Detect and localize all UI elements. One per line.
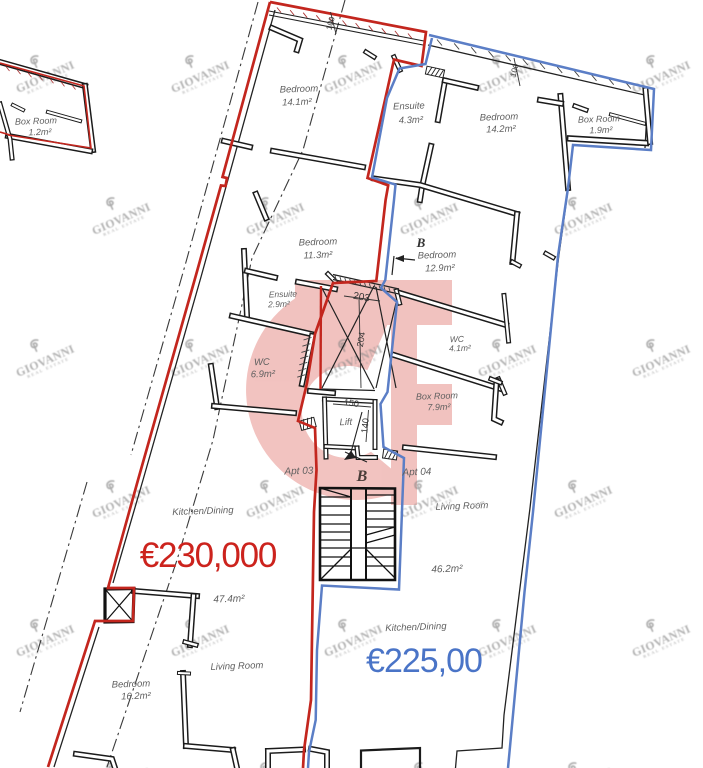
svg-text:Bedroom: Bedroom	[479, 111, 518, 123]
svg-text:Bedroom: Bedroom	[111, 678, 150, 690]
svg-text:14.1m²: 14.1m²	[282, 96, 313, 108]
svg-text:4.1m²: 4.1m²	[449, 343, 472, 354]
svg-text:140: 140	[359, 418, 371, 434]
svg-text:Ensuite: Ensuite	[393, 100, 425, 112]
svg-text:7.9m²: 7.9m²	[427, 402, 451, 413]
svg-text:2.9m²: 2.9m²	[267, 299, 291, 310]
svg-text:47.4m²: 47.4m²	[213, 593, 245, 605]
svg-text:Bedroom: Bedroom	[279, 83, 318, 95]
svg-text:Box Room: Box Room	[416, 390, 459, 401]
svg-text:Box Room: Box Room	[15, 115, 58, 126]
svg-text:Apt 04: Apt 04	[401, 466, 432, 478]
svg-text:WC: WC	[254, 357, 270, 369]
svg-text:16.2m²: 16.2m²	[121, 690, 152, 702]
svg-text:B: B	[356, 468, 368, 485]
svg-text:150: 150	[343, 397, 359, 409]
svg-text:Living Room: Living Room	[210, 660, 263, 673]
svg-text:€225,00: €225,00	[366, 642, 482, 680]
svg-text:6.9m²: 6.9m²	[251, 369, 276, 381]
svg-text:Kitchen/Dining: Kitchen/Dining	[172, 505, 234, 518]
svg-text:Ensuite: Ensuite	[269, 289, 298, 300]
svg-text:€230,000: €230,000	[140, 536, 277, 575]
svg-text:1.2m²: 1.2m²	[28, 127, 52, 138]
svg-text:12.9m²: 12.9m²	[425, 262, 456, 274]
svg-text:Kitchen/Dining: Kitchen/Dining	[385, 621, 447, 634]
svg-text:Bedroom: Bedroom	[298, 236, 337, 248]
svg-text:Box Room: Box Room	[578, 113, 621, 124]
svg-text:46.2m²: 46.2m²	[431, 563, 463, 575]
svg-text:1.9m²: 1.9m²	[589, 125, 613, 136]
svg-text:4.3m²: 4.3m²	[399, 115, 424, 127]
svg-text:Bedroom: Bedroom	[417, 249, 456, 261]
svg-text:11.3m²: 11.3m²	[303, 249, 333, 261]
svg-text:Lift: Lift	[339, 417, 352, 428]
svg-text:Apt 03: Apt 03	[283, 465, 314, 477]
svg-text:B: B	[416, 235, 426, 250]
svg-text:14.2m²: 14.2m²	[486, 123, 517, 135]
